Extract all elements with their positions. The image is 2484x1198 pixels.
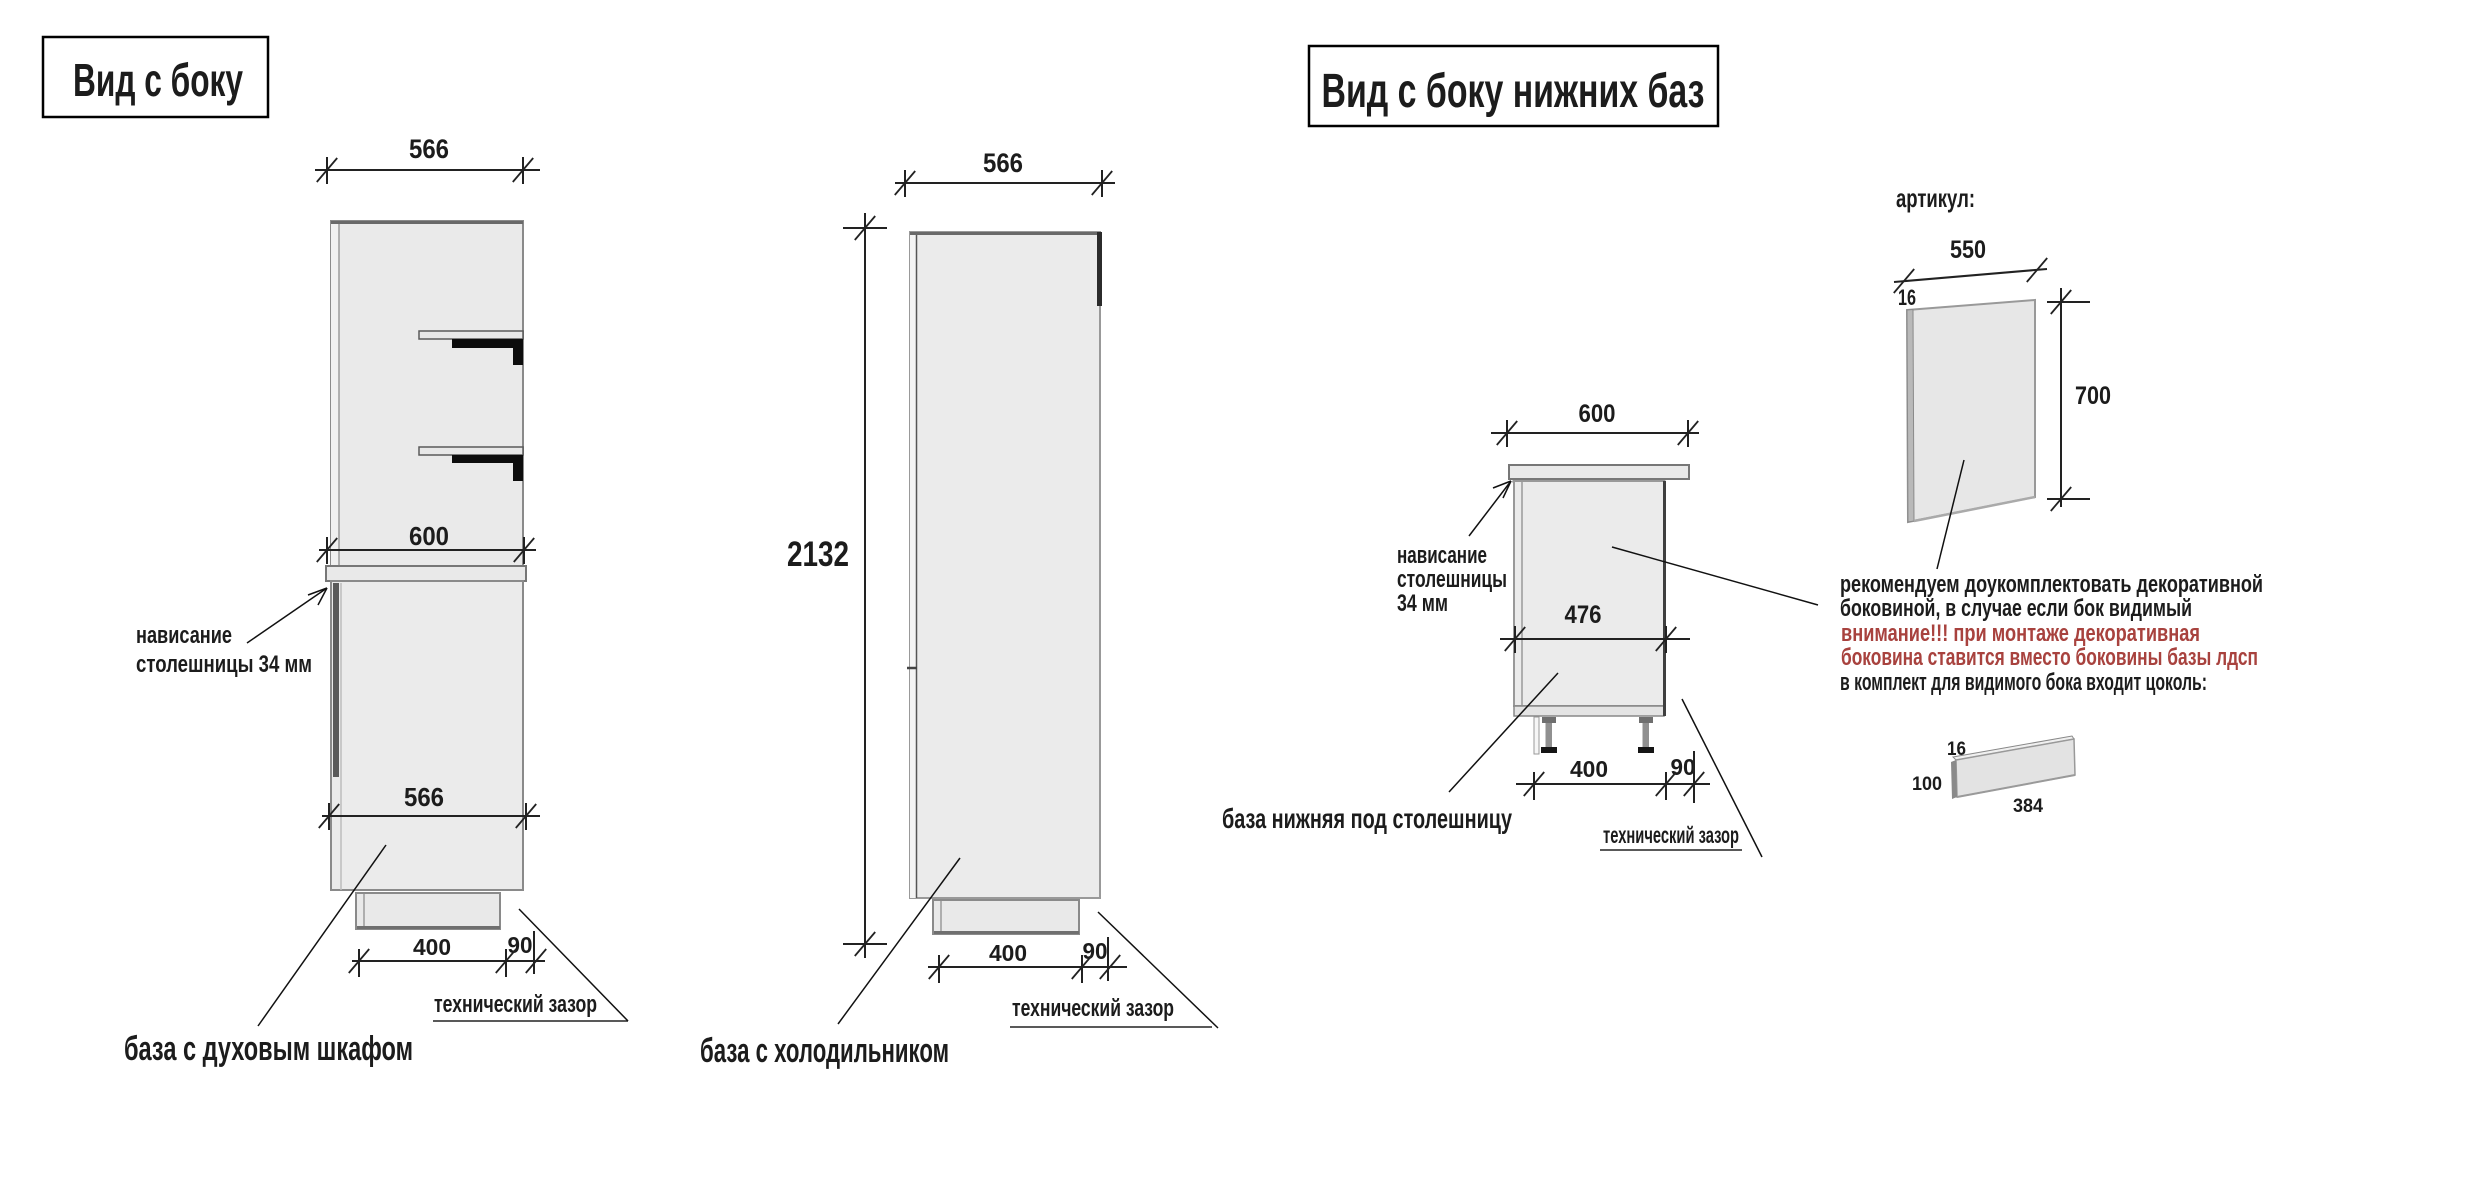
svg-text:нависание: нависание (136, 622, 232, 649)
svg-text:2132: 2132 (787, 535, 849, 574)
svg-text:384: 384 (2013, 796, 2043, 817)
svg-text:база нижняя под столешницу: база нижняя под столешницу (1222, 803, 1512, 834)
svg-text:внимание!!! при монтаже декора: внимание!!! при монтаже декоративная (1841, 620, 2200, 647)
svg-text:90: 90 (1671, 754, 1696, 780)
svg-text:база с холодильником: база с холодильником (700, 1032, 949, 1070)
svg-text:550: 550 (1950, 236, 1986, 264)
svg-text:столешницы 34 мм: столешницы 34 мм (136, 651, 312, 678)
svg-text:400: 400 (1570, 756, 1608, 782)
svg-text:технический зазор: технический зазор (434, 991, 597, 1018)
svg-text:566: 566 (983, 148, 1023, 178)
svg-text:34 мм: 34 мм (1397, 590, 1448, 617)
svg-text:476: 476 (1565, 601, 1602, 629)
svg-text:566: 566 (404, 782, 444, 812)
svg-text:технический зазор: технический зазор (1603, 822, 1739, 848)
svg-text:база с духовым шкафом: база с духовым шкафом (124, 1030, 413, 1068)
svg-text:в комплект для видимого бока в: в комплект для видимого бока входит цоко… (1840, 669, 2207, 696)
svg-text:400: 400 (989, 940, 1027, 966)
svg-text:артикул:: артикул: (1896, 183, 1975, 213)
svg-text:нависание: нависание (1397, 542, 1487, 569)
svg-text:600: 600 (409, 521, 449, 551)
svg-text:100: 100 (1912, 774, 1942, 795)
svg-text:700: 700 (2075, 382, 2111, 410)
svg-text:боковиной, в случае если бок в: боковиной, в случае если бок видимый (1840, 595, 2192, 622)
svg-text:рекомендуем доукомплектовать д: рекомендуем доукомплектовать декоративно… (1840, 571, 2263, 598)
svg-text:16: 16 (1898, 285, 1916, 310)
svg-text:566: 566 (409, 134, 449, 164)
svg-text:90: 90 (1083, 938, 1108, 964)
svg-text:400: 400 (413, 934, 451, 960)
svg-text:Вид с боку: Вид с боку (73, 54, 243, 106)
svg-text:технический зазор: технический зазор (1012, 995, 1174, 1022)
svg-text:столешницы: столешницы (1397, 566, 1507, 593)
svg-text:Вид с боку нижних баз: Вид с боку нижних баз (1322, 65, 1705, 118)
svg-text:600: 600 (1579, 400, 1616, 428)
svg-text:боковина ставится вместо боков: боковина ставится вместо боковины базы л… (1841, 644, 2258, 671)
